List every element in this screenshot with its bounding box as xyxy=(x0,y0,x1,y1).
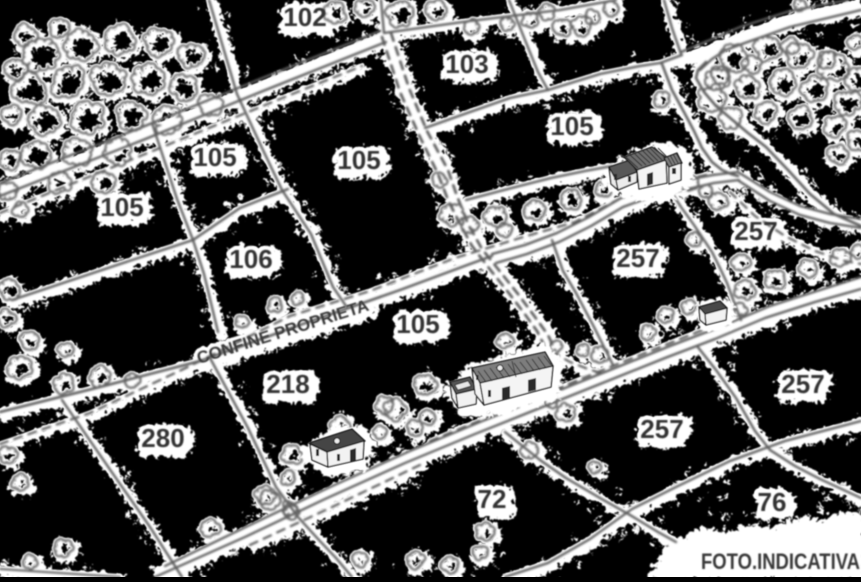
svg-text:105: 105 xyxy=(100,192,143,222)
svg-text:76: 76 xyxy=(758,487,787,517)
svg-text:105: 105 xyxy=(550,111,593,141)
svg-text:FOTO.INDICATIVA: FOTO.INDICATIVA xyxy=(701,551,860,575)
svg-text:72: 72 xyxy=(478,484,507,514)
svg-text:102: 102 xyxy=(283,2,326,32)
svg-text:105: 105 xyxy=(193,142,236,172)
svg-text:106: 106 xyxy=(229,244,272,274)
svg-text:105: 105 xyxy=(337,145,380,175)
svg-text:257: 257 xyxy=(616,243,659,273)
svg-text:103: 103 xyxy=(445,49,488,79)
svg-text:257: 257 xyxy=(734,216,777,246)
svg-text:257: 257 xyxy=(781,369,824,399)
svg-text:280: 280 xyxy=(141,423,184,453)
svg-text:218: 218 xyxy=(266,369,309,399)
svg-text:257: 257 xyxy=(640,414,683,444)
svg-text:105: 105 xyxy=(396,309,439,339)
